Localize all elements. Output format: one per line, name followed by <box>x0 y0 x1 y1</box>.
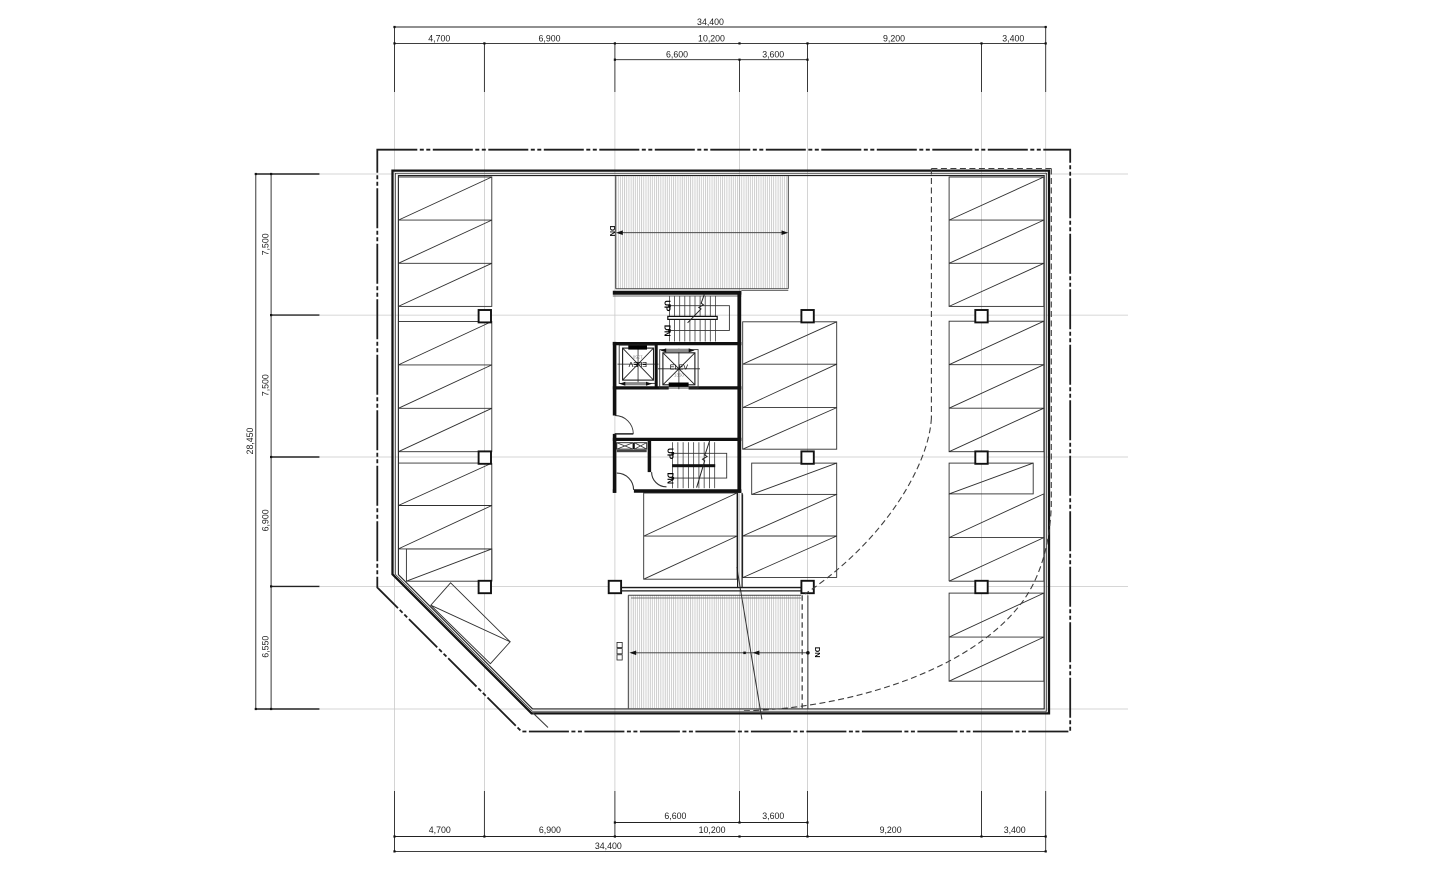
svg-text:7,500: 7,500 <box>261 374 271 396</box>
svg-text:7,500: 7,500 <box>261 233 271 255</box>
svg-text:4,700: 4,700 <box>429 825 451 835</box>
svg-text:3,400: 3,400 <box>1004 825 1026 835</box>
svg-text:DN: DN <box>608 226 617 237</box>
svg-text:10,200: 10,200 <box>698 33 725 43</box>
svg-text:34,400: 34,400 <box>697 17 724 27</box>
svg-text:UP: UP <box>662 300 671 312</box>
svg-text:6,600: 6,600 <box>666 50 688 60</box>
svg-text:DN: DN <box>665 473 674 485</box>
svg-text:6,550: 6,550 <box>261 636 271 658</box>
svg-text:6,600: 6,600 <box>664 811 686 821</box>
svg-text:3,600: 3,600 <box>762 50 784 60</box>
svg-text:34,400: 34,400 <box>595 841 622 851</box>
svg-text:DN: DN <box>662 325 671 337</box>
svg-text:10,200: 10,200 <box>699 825 726 835</box>
svg-text:1350: 1350 <box>632 354 643 359</box>
svg-text:ELEV: ELEV <box>670 363 689 372</box>
svg-text:6,900: 6,900 <box>538 33 560 43</box>
svg-text:28,450: 28,450 <box>245 427 255 454</box>
svg-text:UP: UP <box>665 448 674 460</box>
svg-text:3,600: 3,600 <box>762 811 784 821</box>
svg-text:1350: 1350 <box>674 373 685 378</box>
svg-text:6,900: 6,900 <box>539 825 561 835</box>
svg-text:9,200: 9,200 <box>880 825 902 835</box>
svg-text:4,700: 4,700 <box>428 33 450 43</box>
svg-text:DN: DN <box>813 647 822 658</box>
svg-text:3,400: 3,400 <box>1002 33 1024 43</box>
svg-text:6,900: 6,900 <box>261 509 271 531</box>
svg-text:9,200: 9,200 <box>883 33 905 43</box>
svg-text:ELEV: ELEV <box>628 360 647 369</box>
